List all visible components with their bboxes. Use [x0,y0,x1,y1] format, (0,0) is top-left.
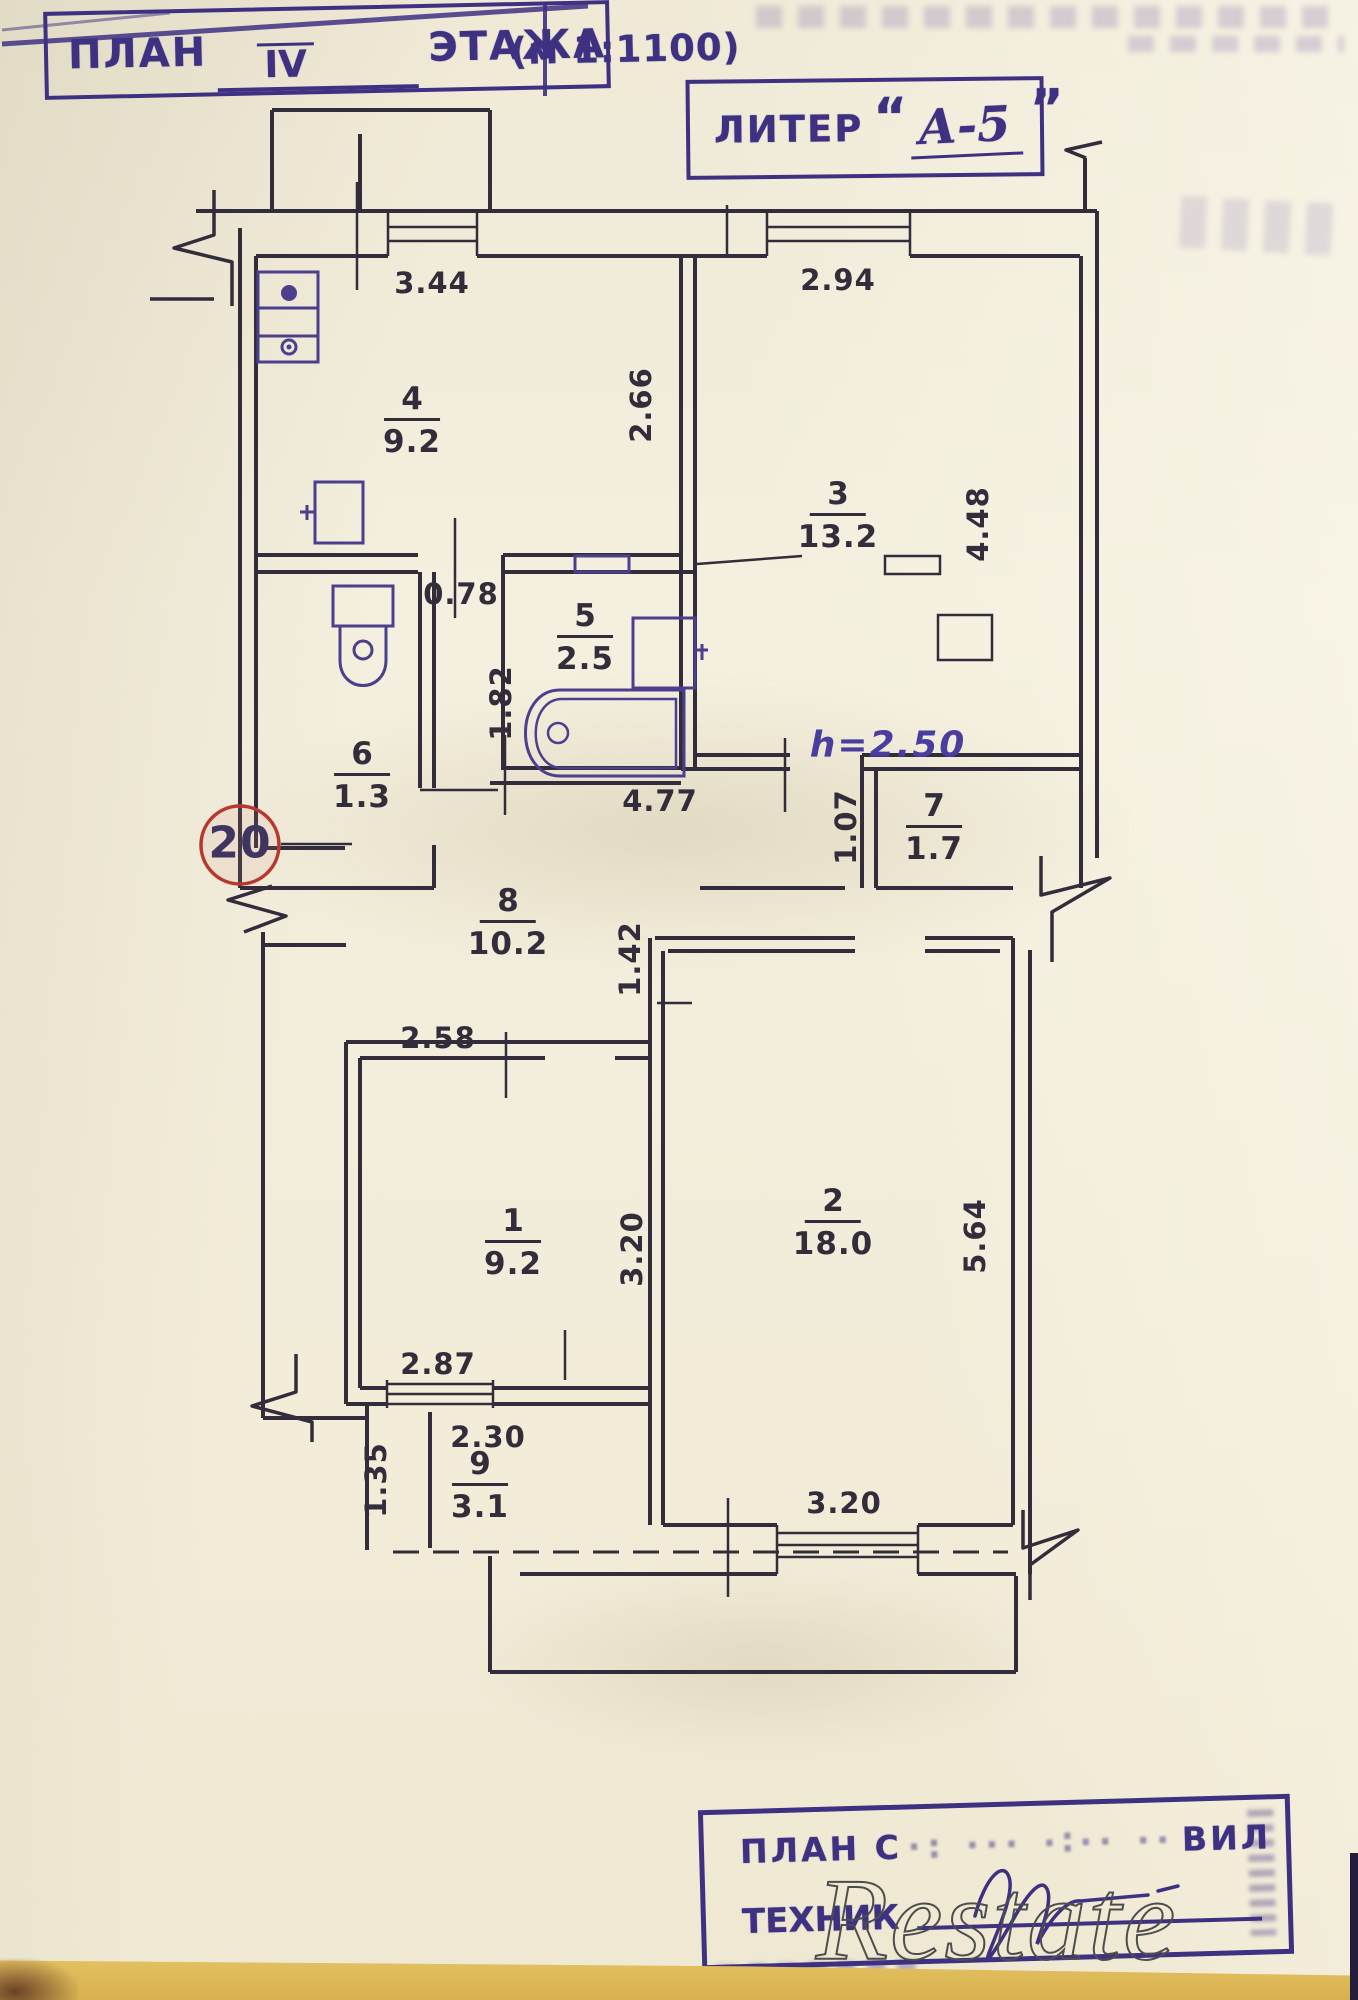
room-label-2: 2 18.0 [793,1185,874,1262]
dim-top-left: 3.44 [394,266,470,300]
dim-room7-width: 1.07 [829,789,863,865]
dim-room1-width: 2.58 [400,1021,476,1055]
dim-bath-width: 4.77 [622,784,698,818]
wall-lines [196,110,1097,1672]
dim-balcony-top: 2.87 [400,1347,476,1381]
dim-balcony-inner: 2.30 [450,1420,526,1454]
ceiling-height-note: h=2.50 [810,725,967,766]
dim-bath-depth: 1.82 [484,665,518,741]
floor-plan-stamp: ПЛАН IV ЭТАЖА (м 1:1100) [43,0,611,100]
restate-watermark: Restate [816,1852,1177,1988]
scanned-floor-plan-sheet: ПЛАН IV ЭТАЖА (м 1:1100) ЛИТЕР “ А-5 ” 1… [0,0,1358,2000]
dim-room2-depth: 5.64 [958,1198,992,1274]
stove-icon [258,272,318,362]
room-label-8: 8 10.2 [468,885,549,962]
room-label-4: 4 9.2 [383,383,441,460]
stamp-word-plan: ПЛАН [68,30,208,79]
dim-room3-depth: 4.48 [961,486,995,562]
dim-balcony-depth: 1.35 [359,1442,393,1518]
liter-label: ЛИТЕР [714,107,864,152]
corner-stain [0,1958,78,2000]
dim-room2-window: 3.20 [806,1486,882,1520]
floor-number-value: IV [257,42,314,87]
dim-hall-width: 1.42 [613,921,647,997]
room-label-6: 6 1.3 [333,738,391,815]
liter-value: А-5 [908,95,1023,159]
scale-note: (м 1:1100) [510,25,741,73]
room-label-5: 5 2.5 [556,600,614,677]
dim-room1-depth: 3.20 [615,1211,649,1287]
dim-top-right: 2.94 [800,263,876,297]
bathtub-icon [526,690,685,776]
room-label-3: 3 13.2 [798,478,879,555]
toilet-icon [333,586,393,686]
dim-passage: 0.78 [423,577,499,611]
room-label-7: 7 1.7 [905,790,963,867]
door-leaf-and-niche [697,556,992,660]
apartment-number: 20 [208,817,271,868]
stamp-edge-smudge [1247,1809,1277,1936]
floor-number-blank: IV [216,12,419,92]
kitchen-sink-icon [300,482,363,543]
scan-edge-bar [1350,1853,1358,2000]
room-label-1: 1 9.2 [484,1205,542,1282]
liter-stamp: ЛИТЕР “ А-5 ” [685,76,1044,180]
dim-kitchen-depth: 2.66 [624,367,658,443]
plan-linework [0,0,1358,2000]
room-label-9: 9 3.1 [451,1448,509,1525]
